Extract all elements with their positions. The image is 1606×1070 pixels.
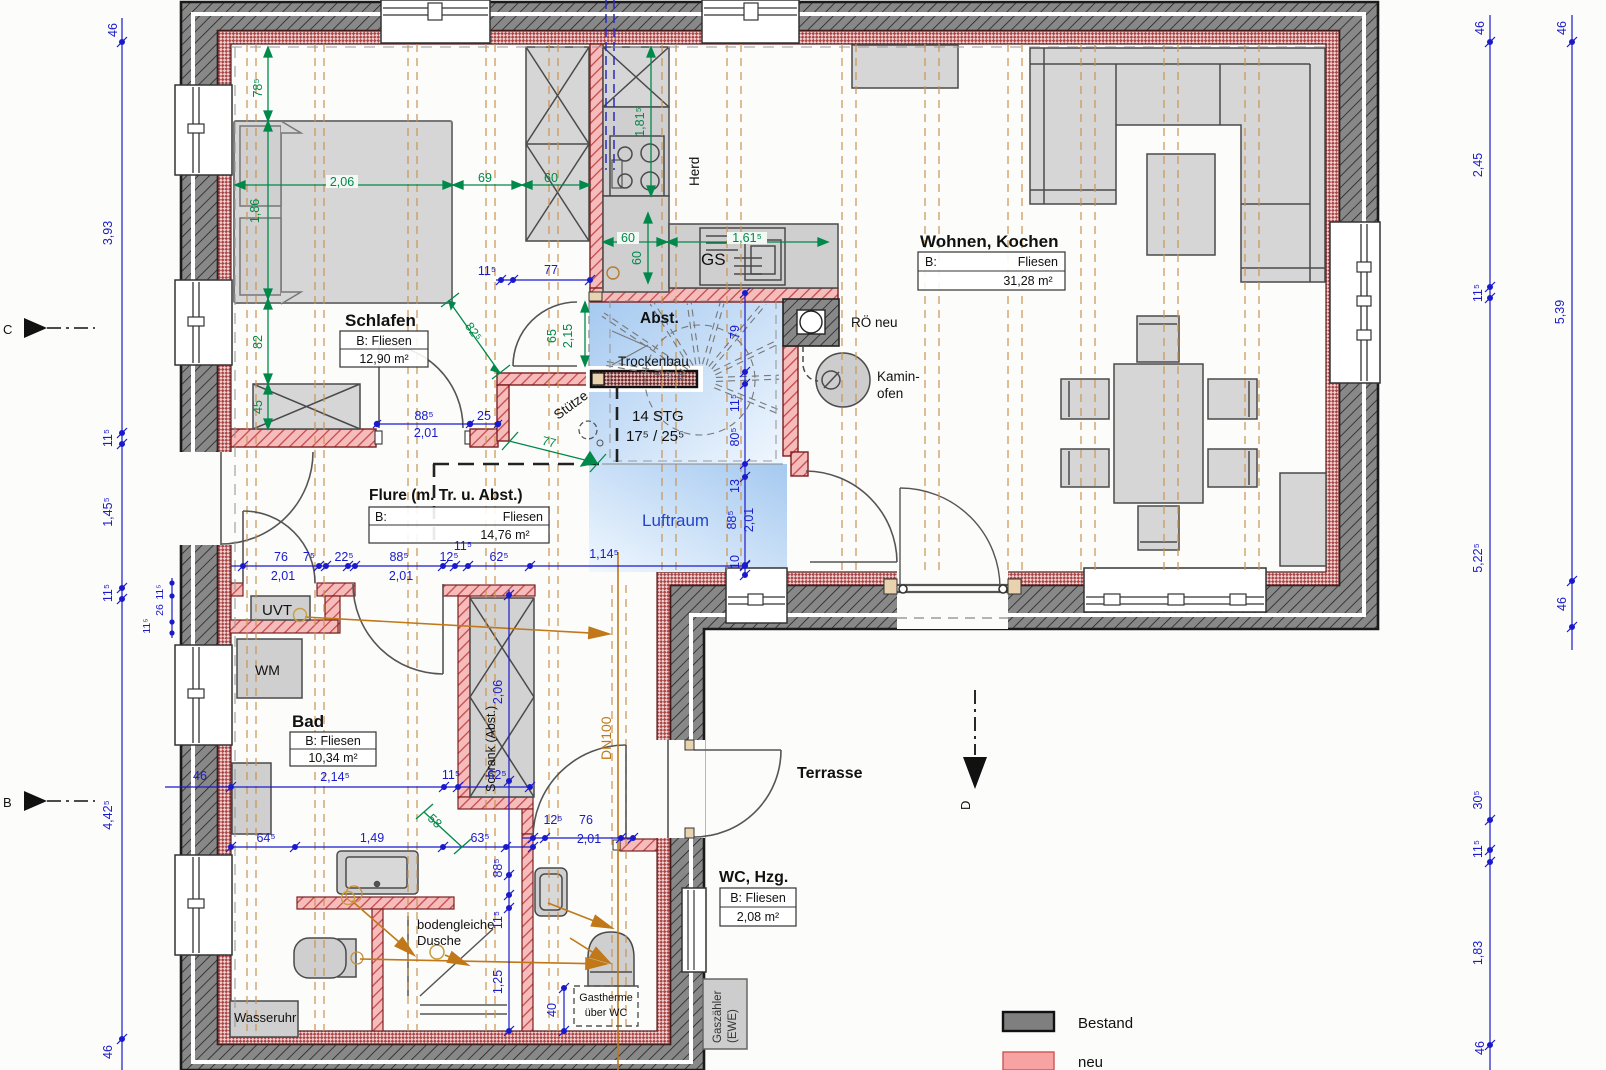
svg-text:2,01: 2,01 — [271, 569, 295, 583]
svg-text:60: 60 — [630, 251, 644, 265]
svg-text:Gaszähler: Gaszähler — [712, 990, 724, 1043]
svg-text:B:: B: — [925, 255, 937, 269]
svg-text:11⁵: 11⁵ — [1471, 840, 1485, 858]
svg-text:40: 40 — [545, 1003, 559, 1017]
svg-text:13: 13 — [728, 479, 742, 493]
svg-text:2,01: 2,01 — [414, 426, 438, 440]
svg-text:1,83: 1,83 — [1471, 941, 1485, 965]
svg-text:Kamin-: Kamin- — [877, 369, 920, 384]
svg-text:2,06: 2,06 — [491, 680, 505, 704]
svg-text:88⁵: 88⁵ — [414, 409, 433, 423]
svg-text:46: 46 — [101, 1045, 115, 1059]
svg-text:14,76 m²: 14,76 m² — [480, 528, 529, 542]
svg-text:1,25: 1,25 — [491, 970, 505, 994]
svg-text:B: Fliesen: B: Fliesen — [305, 734, 361, 748]
svg-text:D: D — [958, 801, 973, 810]
svg-text:11⁵: 11⁵ — [491, 911, 505, 929]
svg-text:11⁵: 11⁵ — [454, 539, 472, 553]
svg-text:22⁵: 22⁵ — [334, 550, 353, 564]
svg-text:14 STG: 14 STG — [632, 408, 684, 425]
svg-text:69: 69 — [478, 171, 492, 185]
svg-text:11⁵: 11⁵ — [442, 768, 460, 782]
svg-text:10: 10 — [728, 555, 742, 569]
svg-text:11⁵: 11⁵ — [728, 394, 742, 412]
svg-text:46: 46 — [1473, 21, 1487, 35]
svg-text:63⁵: 63⁵ — [470, 831, 489, 845]
svg-text:45: 45 — [251, 400, 265, 414]
svg-text:11⁵: 11⁵ — [1471, 284, 1485, 302]
svg-text:(EWE): (EWE) — [727, 1009, 739, 1043]
svg-text:2,01: 2,01 — [742, 508, 756, 532]
svg-text:12,90 m²: 12,90 m² — [359, 352, 408, 366]
svg-text:82: 82 — [251, 335, 265, 349]
svg-text:88⁵: 88⁵ — [491, 858, 505, 877]
svg-text:4,42⁵: 4,42⁵ — [101, 800, 115, 830]
svg-text:1,49: 1,49 — [360, 831, 384, 845]
svg-text:B: B — [3, 795, 12, 810]
svg-text:1,61⁵: 1,61⁵ — [732, 231, 762, 245]
svg-text:11⁵: 11⁵ — [101, 584, 115, 602]
svg-text:77: 77 — [544, 263, 558, 277]
svg-text:B: Fliesen: B: Fliesen — [356, 334, 412, 348]
svg-text:7⁵: 7⁵ — [303, 550, 315, 564]
svg-text:B: Fliesen: B: Fliesen — [730, 891, 786, 905]
svg-text:64⁵: 64⁵ — [256, 831, 275, 845]
svg-text:65: 65 — [545, 329, 559, 343]
svg-text:46: 46 — [193, 769, 207, 783]
svg-text:46: 46 — [1555, 597, 1569, 611]
svg-text:WM: WM — [255, 662, 280, 678]
svg-text:78⁵: 78⁵ — [251, 78, 265, 97]
svg-text:Terrasse: Terrasse — [797, 765, 863, 782]
svg-text:Wohnen, Kochen: Wohnen, Kochen — [920, 232, 1059, 251]
svg-text:31,28 m²: 31,28 m² — [1003, 274, 1052, 288]
svg-text:Luftraum: Luftraum — [642, 511, 709, 530]
svg-text:30⁵: 30⁵ — [1471, 790, 1485, 809]
svg-text:C: C — [3, 322, 12, 337]
svg-text:Fliesen: Fliesen — [503, 510, 543, 524]
svg-text:11⁵: 11⁵ — [154, 584, 166, 599]
svg-text:über WC: über WC — [585, 1007, 628, 1019]
svg-text:10,34 m²: 10,34 m² — [308, 751, 357, 765]
svg-text:WC, Hzg.: WC, Hzg. — [719, 869, 788, 886]
svg-text:neu: neu — [1078, 1054, 1103, 1070]
svg-text:11⁵: 11⁵ — [478, 264, 496, 278]
svg-text:25: 25 — [477, 409, 491, 423]
svg-text:60: 60 — [544, 171, 558, 185]
svg-text:1,45⁵: 1,45⁵ — [101, 497, 115, 527]
svg-text:62⁵: 62⁵ — [489, 550, 508, 564]
svg-text:2,08 m²: 2,08 m² — [737, 910, 779, 924]
svg-text:RÖ neu: RÖ neu — [851, 315, 898, 330]
svg-text:1,14⁵: 1,14⁵ — [589, 547, 619, 561]
svg-text:Wasseruhr: Wasseruhr — [234, 1010, 297, 1025]
svg-text:Trockenbau: Trockenbau — [618, 354, 689, 369]
svg-text:Herd: Herd — [687, 157, 702, 186]
svg-text:79: 79 — [728, 325, 742, 339]
svg-text:ofen: ofen — [877, 386, 903, 401]
svg-text:11⁵: 11⁵ — [141, 618, 153, 633]
svg-text:76: 76 — [274, 550, 288, 564]
svg-text:2,01: 2,01 — [389, 569, 413, 583]
svg-text:46: 46 — [1555, 21, 1569, 35]
svg-text:GS: GS — [701, 250, 726, 269]
svg-text:Bad: Bad — [292, 712, 324, 731]
svg-text:1,86: 1,86 — [248, 199, 262, 223]
svg-text:2,06: 2,06 — [330, 175, 354, 189]
svg-text:Fliesen: Fliesen — [1018, 255, 1058, 269]
svg-text:Gastherme: Gastherme — [579, 992, 632, 1004]
svg-text:12⁵: 12⁵ — [543, 813, 562, 827]
svg-text:Dusche: Dusche — [417, 933, 461, 948]
svg-text:3,93: 3,93 — [101, 221, 115, 245]
svg-text:1,81⁵: 1,81⁵ — [633, 107, 647, 137]
svg-text:2,45: 2,45 — [1471, 153, 1485, 177]
svg-text:76: 76 — [579, 813, 593, 827]
svg-text:88⁵: 88⁵ — [725, 510, 739, 529]
svg-text:bodengleiche: bodengleiche — [417, 917, 494, 932]
svg-text:Flure (m. Tr. u. Abst.): Flure (m. Tr. u. Abst.) — [369, 487, 523, 504]
svg-text:DN100: DN100 — [598, 716, 614, 760]
svg-text:46: 46 — [1473, 1041, 1487, 1055]
svg-text:Bestand: Bestand — [1078, 1015, 1133, 1032]
svg-text:Abst.: Abst. — [640, 310, 679, 327]
svg-text:5,39: 5,39 — [1553, 300, 1567, 324]
svg-text:2,15: 2,15 — [561, 324, 575, 348]
svg-text:60: 60 — [621, 231, 635, 245]
svg-text:B:: B: — [375, 510, 387, 524]
svg-text:2,14⁵: 2,14⁵ — [320, 770, 350, 784]
svg-text:17⁵ / 25⁵: 17⁵ / 25⁵ — [626, 428, 684, 445]
svg-text:2,01: 2,01 — [577, 832, 601, 846]
svg-text:5,22⁵: 5,22⁵ — [1471, 543, 1485, 573]
svg-text:26: 26 — [154, 604, 166, 616]
svg-text:Schlafen: Schlafen — [345, 311, 416, 330]
svg-text:UVT: UVT — [262, 602, 292, 619]
svg-text:88⁵: 88⁵ — [389, 550, 408, 564]
svg-text:62⁵: 62⁵ — [487, 768, 506, 782]
svg-text:11⁵: 11⁵ — [101, 429, 115, 447]
svg-text:46: 46 — [106, 23, 120, 37]
svg-text:80⁵: 80⁵ — [728, 427, 742, 446]
